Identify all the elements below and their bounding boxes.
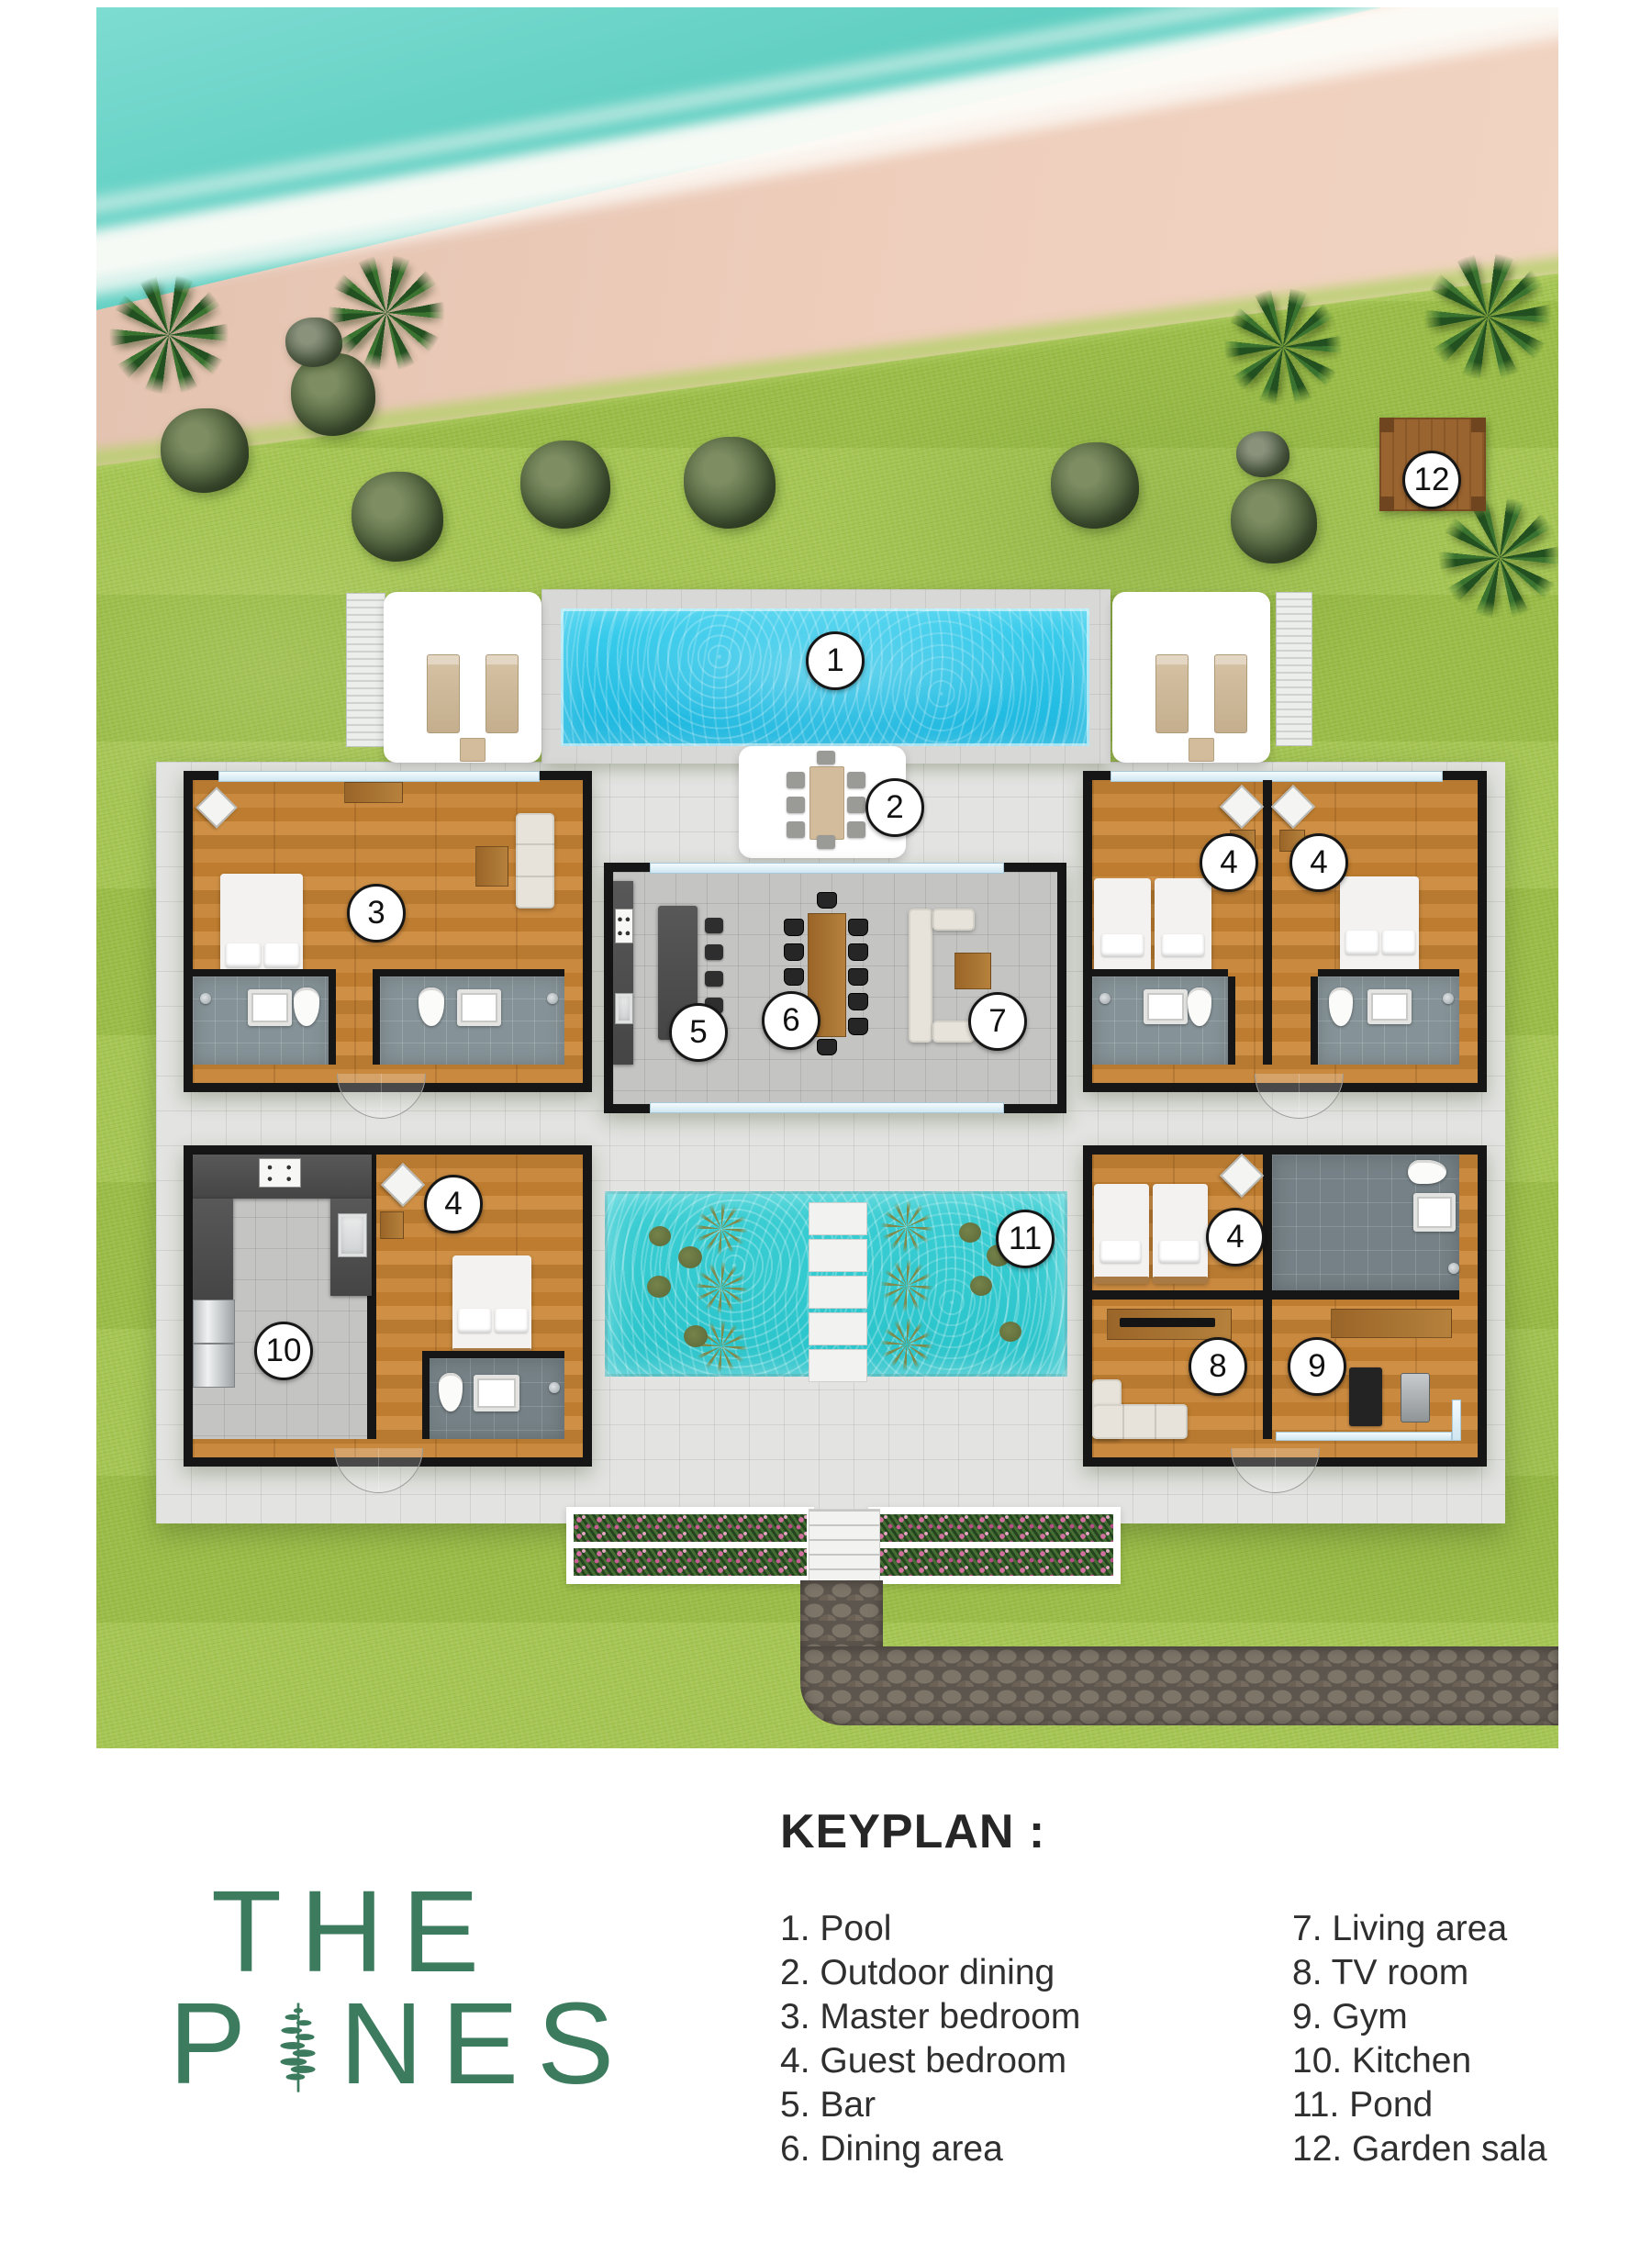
shrub xyxy=(1231,479,1317,563)
interior-wall xyxy=(329,976,336,1065)
interior-wall xyxy=(1318,969,1459,976)
lily-pad xyxy=(649,1226,671,1246)
keyplan-item: 8. TV room xyxy=(1292,1951,1547,1995)
lily-pad xyxy=(959,1222,981,1243)
pillow xyxy=(458,1309,491,1333)
outdoor-dining-table xyxy=(809,766,844,840)
outdoor-chair xyxy=(787,797,805,813)
twin-bed xyxy=(1155,878,1211,976)
palm-tree xyxy=(328,255,445,371)
shrub-gray xyxy=(1236,431,1289,477)
outdoor-chair xyxy=(817,835,835,849)
television xyxy=(1120,1318,1215,1327)
pillow xyxy=(1162,934,1204,956)
keyplan-item: 12. Garden sala xyxy=(1292,2127,1547,2171)
tv-sofa xyxy=(1092,1404,1188,1439)
keyplan-item: 11. Pond xyxy=(1292,2083,1547,2127)
shower-head xyxy=(547,993,558,1004)
glass-window xyxy=(1276,1432,1452,1441)
outdoor-chair xyxy=(847,797,865,813)
lily-pad xyxy=(647,1276,671,1298)
shrub xyxy=(161,408,249,493)
sink xyxy=(248,989,292,1026)
sun-lounger xyxy=(486,654,519,733)
flower-bed xyxy=(574,1514,807,1542)
dining-chair xyxy=(848,993,868,1010)
glass-window xyxy=(1452,1400,1461,1441)
pillow xyxy=(1382,931,1415,954)
kitchen-counter xyxy=(193,1199,233,1300)
glass-wall xyxy=(218,771,540,782)
bedroom-sofa xyxy=(516,813,554,909)
aquatic-plant xyxy=(880,1259,933,1312)
dining-chair xyxy=(784,968,804,986)
coffee-table xyxy=(954,953,991,989)
marker-kitchen: 10 xyxy=(254,1322,313,1380)
shrub xyxy=(684,437,776,529)
gym-shelf xyxy=(1331,1309,1452,1338)
aquatic-plant xyxy=(695,1261,748,1314)
sink xyxy=(1413,1193,1456,1232)
sectional-sofa xyxy=(932,909,975,931)
dining-chair xyxy=(784,943,804,961)
stove xyxy=(259,1158,301,1188)
lily-pad xyxy=(970,1276,992,1296)
sink xyxy=(615,993,633,1024)
bar-stool xyxy=(705,971,723,987)
deck-boards xyxy=(346,593,385,747)
keyplan-item: 9. Gym xyxy=(1292,1995,1547,2039)
twin-bed xyxy=(1094,878,1151,976)
keyplan-item: 5. Bar xyxy=(780,2083,1080,2127)
aerial-site-plan: 1 2 3 4 4 4 4 5 6 7 8 9 10 11 12 xyxy=(96,7,1558,1748)
twin-bed xyxy=(1094,1184,1149,1283)
toilet xyxy=(1408,1160,1446,1184)
floorplan-poster: 1 2 3 4 4 4 4 5 6 7 8 9 10 11 12 THE P xyxy=(0,0,1652,2265)
pillow xyxy=(264,943,299,967)
keyplan-item: 1. Pool xyxy=(780,1907,1080,1951)
keyplan-item: 6. Dining area xyxy=(780,2127,1080,2171)
marker-pool: 1 xyxy=(806,631,865,690)
dining-chair xyxy=(848,1018,868,1035)
interior-wall xyxy=(1263,780,1272,1065)
shelf xyxy=(380,1211,404,1239)
bar-stool xyxy=(705,944,723,960)
aquatic-plant xyxy=(880,1318,933,1371)
sink xyxy=(1144,989,1188,1024)
marker-living-area: 7 xyxy=(968,992,1027,1051)
pillow xyxy=(226,943,261,967)
shower-head xyxy=(1099,993,1111,1004)
dining-chair xyxy=(817,892,837,909)
sala-post xyxy=(1471,418,1486,432)
keyplan-column-left: 1. Pool 2. Outdoor dining 3. Master bedr… xyxy=(780,1907,1080,2171)
outdoor-chair xyxy=(787,821,805,838)
guest-tv-gym-wing xyxy=(1083,1145,1487,1467)
stone-path xyxy=(800,1580,883,1652)
accent-chair xyxy=(1271,785,1315,829)
sink xyxy=(338,1213,367,1257)
keyplan-item: 4. Guest bedroom xyxy=(780,2039,1080,2083)
logo-line-2: P NES xyxy=(169,1986,632,2102)
marker-guest-bedroom: 4 xyxy=(424,1175,483,1233)
lily-pad xyxy=(684,1325,708,1347)
interior-wall xyxy=(1092,1290,1459,1300)
kitchen-guest-wing xyxy=(184,1145,592,1467)
pillow xyxy=(495,1309,528,1333)
stone-path xyxy=(800,1646,1558,1725)
marker-garden-sala: 12 xyxy=(1402,451,1461,509)
pillow xyxy=(1101,934,1144,956)
double-bed xyxy=(1340,876,1419,976)
palm-tree xyxy=(109,275,229,395)
logo-letter-p: P xyxy=(169,1986,264,2102)
outdoor-chair xyxy=(847,821,865,838)
palm-tree xyxy=(1223,288,1343,406)
exercise-machine xyxy=(1401,1373,1430,1423)
shower-head xyxy=(549,1382,560,1393)
keyplan-item: 3. Master bedroom xyxy=(780,1995,1080,2039)
stepping-stone xyxy=(809,1202,867,1235)
glass-wall xyxy=(650,1102,1004,1113)
keyplan-item: 7. Living area xyxy=(1292,1907,1547,1951)
outdoor-chair xyxy=(817,751,835,764)
glass-wall xyxy=(650,863,1004,874)
sala-post xyxy=(1379,497,1394,511)
marker-guest-bedroom: 4 xyxy=(1200,833,1258,892)
bar-stool xyxy=(705,918,723,933)
headboard xyxy=(1094,1277,1149,1284)
shrub xyxy=(1051,442,1139,529)
shrub xyxy=(520,441,610,529)
interior-wall xyxy=(373,976,380,1065)
outdoor-chair xyxy=(787,772,805,788)
interior-wall xyxy=(373,969,564,976)
dresser xyxy=(344,782,403,803)
refrigerator xyxy=(193,1300,235,1344)
living-pavilion xyxy=(604,863,1066,1113)
sink xyxy=(457,989,501,1026)
stepping-stone xyxy=(809,1312,867,1345)
dining-chair xyxy=(848,943,868,961)
flower-bed xyxy=(876,1514,1113,1542)
outdoor-chair xyxy=(847,772,865,788)
brand-logo: THE P NES xyxy=(169,1863,600,2102)
marker-guest-bedroom: 4 xyxy=(1289,833,1348,892)
interior-wall xyxy=(193,969,336,976)
sink xyxy=(474,1375,519,1411)
marker-gym: 9 xyxy=(1288,1337,1346,1396)
shower-head xyxy=(1443,993,1454,1004)
accent-chair xyxy=(381,1163,425,1207)
flower-bed xyxy=(574,1548,807,1576)
accent-chair xyxy=(1220,785,1264,829)
lily-pad xyxy=(678,1246,702,1268)
sun-lounger xyxy=(1155,654,1189,733)
interior-wall xyxy=(422,1358,430,1439)
pillow xyxy=(1100,1241,1141,1263)
logo-line-1: THE xyxy=(211,1874,497,1990)
shower-head xyxy=(1448,1263,1459,1274)
accent-chair xyxy=(1220,1154,1264,1198)
stepping-stone xyxy=(809,1276,867,1309)
stove xyxy=(615,909,633,943)
shower-head xyxy=(200,993,211,1004)
logo-letters-nes: NES xyxy=(340,1986,632,2102)
sun-lounger xyxy=(427,654,460,733)
side-table xyxy=(1189,738,1214,762)
accent-chair xyxy=(195,787,237,828)
lily-pad xyxy=(999,1322,1021,1342)
sectional-sofa xyxy=(909,909,932,1043)
headboard xyxy=(1153,1277,1208,1284)
keyplan-heading: KEYPLAN : xyxy=(780,1804,1045,1859)
aquatic-plant xyxy=(695,1202,748,1255)
interior-wall xyxy=(1228,976,1235,1065)
refrigerator xyxy=(193,1344,235,1388)
keyplan-column-right: 7. Living area 8. TV room 9. Gym 10. Kit… xyxy=(1292,1907,1547,2171)
marker-guest-bedroom: 4 xyxy=(1206,1208,1265,1266)
side-table xyxy=(460,738,486,762)
marker-pond: 11 xyxy=(996,1210,1055,1268)
coffee-table xyxy=(475,846,508,887)
twin-bed xyxy=(1153,1184,1208,1283)
shrub xyxy=(352,472,443,562)
interior-wall xyxy=(422,1351,564,1358)
guest-wing-north xyxy=(1083,771,1487,1092)
dining-chair xyxy=(848,968,868,986)
palm-tree xyxy=(1423,253,1552,380)
marker-outdoor-dining: 2 xyxy=(865,778,924,837)
pillow xyxy=(1345,931,1379,954)
stepping-stone xyxy=(809,1239,867,1272)
aquatic-plant xyxy=(880,1200,933,1254)
weight-bench xyxy=(1349,1367,1382,1426)
deck-boards xyxy=(1276,592,1312,746)
sink xyxy=(1367,989,1412,1024)
marker-master-bedroom: 3 xyxy=(347,884,406,943)
interior-wall xyxy=(1092,969,1228,976)
palm-tree xyxy=(1438,497,1558,619)
keyplan-item: 2. Outdoor dining xyxy=(780,1951,1080,1995)
pine-tree-icon xyxy=(270,1995,327,2098)
glass-wall xyxy=(1111,771,1443,782)
dining-chair xyxy=(817,1039,837,1055)
dining-chair xyxy=(784,919,804,936)
dining-chair xyxy=(848,919,868,936)
pond xyxy=(605,1191,1067,1377)
double-bed xyxy=(452,1255,531,1355)
keyplan-item: 10. Kitchen xyxy=(1292,2039,1547,2083)
sala-post xyxy=(1471,497,1486,511)
flower-bed xyxy=(876,1548,1113,1576)
marker-bar: 5 xyxy=(669,1003,728,1062)
sun-lounger xyxy=(1214,654,1247,733)
garden-steps xyxy=(809,1509,880,1586)
stepping-stone xyxy=(809,1349,867,1382)
interior-wall xyxy=(1311,976,1318,1065)
sala-post xyxy=(1379,418,1394,432)
marker-dining-area: 6 xyxy=(762,991,820,1050)
marker-tv-room: 8 xyxy=(1189,1337,1247,1396)
pillow xyxy=(1159,1241,1200,1263)
